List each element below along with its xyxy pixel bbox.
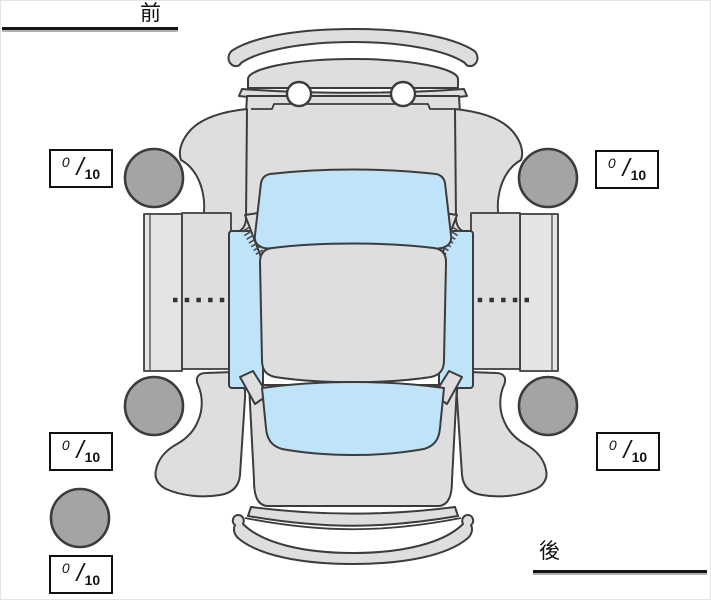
rear-underline [533, 570, 707, 573]
windshield [255, 170, 451, 255]
score-max: 10 [85, 166, 101, 182]
headlight-washer-right-icon [391, 82, 415, 106]
rear-label: 後 [539, 541, 561, 562]
score-value: 0 [62, 560, 70, 576]
score-box-front-left: 0/10 [49, 149, 113, 188]
tire-front-icon [125, 149, 183, 207]
spare-tire-icon [51, 489, 109, 547]
score-box-front-right: 0/10 [595, 150, 659, 189]
front-underline [2, 27, 178, 30]
vehicle-condition-panel: 前 後 0/10 0/10 0/10 0/10 0/10 [0, 0, 711, 600]
score-box-rear-left: 0/10 [49, 432, 113, 471]
headlight-washer-left-icon [287, 82, 311, 106]
score-value: 0 [62, 437, 70, 453]
score-max: 10 [85, 449, 101, 465]
score-slash: / [623, 156, 630, 181]
score-value: 0 [62, 154, 70, 170]
score-max: 10 [631, 167, 647, 183]
front-bumper [248, 59, 458, 88]
score-box-rear-right: 0/10 [596, 432, 660, 471]
score-box-spare: 0/10 [49, 555, 113, 594]
score-slash: / [624, 438, 631, 463]
score-slash: / [77, 155, 84, 180]
roof [260, 244, 446, 383]
front-label: 前 [140, 3, 162, 24]
car-top-view-diagram [0, 0, 711, 600]
side-window [229, 231, 263, 388]
score-max: 10 [632, 449, 648, 465]
rear-window [262, 382, 444, 455]
door-panel [182, 213, 231, 369]
score-value: 0 [608, 155, 616, 171]
score-slash: / [77, 438, 84, 463]
score-slash: / [77, 561, 84, 586]
tire-rear-icon [125, 377, 183, 435]
score-value: 0 [609, 437, 617, 453]
score-max: 10 [85, 572, 101, 588]
